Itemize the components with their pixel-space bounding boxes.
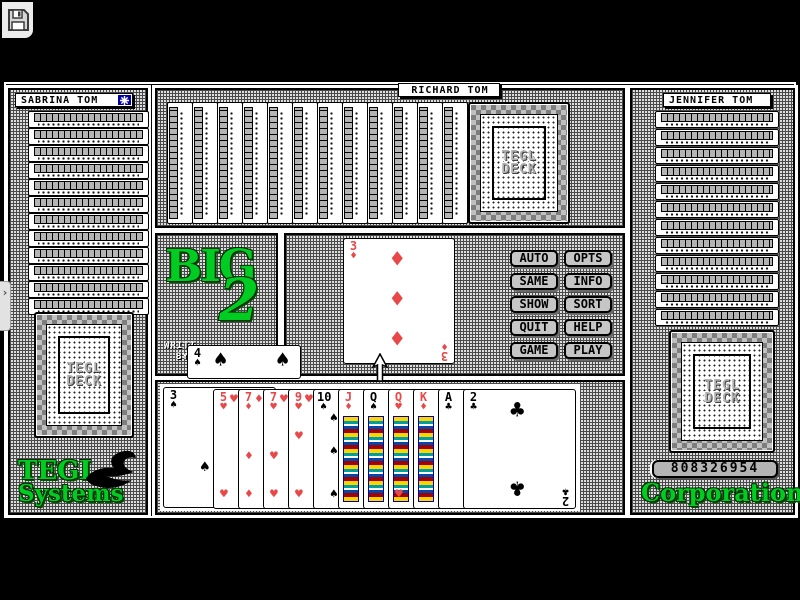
card-pip: ♥ — [270, 488, 278, 501]
player-panel-top: TEGL DECK — [155, 88, 625, 228]
card-back — [28, 247, 149, 264]
same-button[interactable]: SAME — [510, 273, 558, 290]
face-card-art — [368, 416, 384, 502]
corporation-wordmark: Corporation — [641, 481, 800, 505]
player-panel-left: SABRINA TOM TEGL DECK TEGL — [8, 88, 148, 515]
card-pip: ♣ — [510, 476, 524, 500]
card-back — [367, 102, 393, 224]
opts-button[interactable]: OPTS — [564, 250, 612, 267]
card-back — [192, 102, 218, 224]
info-button[interactable]: INFO — [564, 273, 612, 290]
hand-panel: 3♠ ♠ 5♥ ♥ ♥ 7♦ ♦ ♦ ♦ 7♥ ♥ ♥ ♥ 9♥ ♥ ♥ ♥ 1… — [155, 380, 625, 515]
card-pip: ♦ — [255, 393, 263, 406]
player-name-right-label: JENNIFER TOM — [669, 95, 753, 106]
card-pip: ♥ — [295, 430, 303, 443]
deck-back-card: TEGL DECK — [34, 312, 134, 438]
player-panel-right: JENNIFER TOM TEGL DECK — [630, 88, 795, 515]
card-pip: ♠ — [200, 460, 210, 473]
edge-slide-tab[interactable]: › — [0, 281, 11, 331]
big2-game-screen: SABRINA TOM TEGL DECK TEGL — [0, 0, 800, 600]
card-pip: ♥ — [280, 393, 288, 406]
sort-button[interactable]: SORT — [564, 296, 612, 313]
card-back — [342, 102, 368, 224]
played-card: 3 ♦ ♦ ♦ ♦ 3 ♦ — [343, 238, 455, 364]
deck-back-card: TEGL DECK — [669, 330, 775, 453]
turn-indicator — [118, 95, 131, 105]
card-back — [167, 102, 193, 224]
card-pip: ♠ — [276, 349, 289, 373]
card-back — [655, 129, 779, 146]
card-back — [655, 183, 779, 200]
card-back — [242, 102, 268, 224]
card-pip: ♥ — [305, 393, 313, 406]
show-button[interactable]: SHOW — [510, 296, 558, 313]
save-icon — [7, 8, 29, 32]
card-back — [28, 213, 149, 230]
card-back — [28, 128, 149, 145]
card-pip: ♦ — [390, 287, 404, 311]
card-back — [267, 102, 293, 224]
card-pip: ♥ — [220, 488, 228, 501]
card-back — [217, 102, 243, 224]
card-back — [28, 264, 149, 281]
card-back — [392, 102, 418, 224]
player-name-top: RICHARD TOM — [398, 83, 500, 97]
card-back — [28, 179, 149, 196]
card-back — [28, 196, 149, 213]
card-back — [28, 111, 149, 128]
table-panel: 3 ♦ ♦ ♦ ♦ 3 ♦ AUTO OPTS SAME INFO SHOW S… — [284, 233, 625, 376]
deck-back-label: TEGL DECK — [470, 104, 568, 222]
deck-back-card: TEGL DECK — [468, 102, 570, 224]
face-card-art — [343, 416, 359, 502]
serial-number: 808326954 — [652, 460, 778, 478]
help-button[interactable]: HELP — [564, 319, 612, 336]
card-pip: ♠ — [330, 488, 338, 501]
card-pip: ♥ — [230, 393, 238, 406]
swan-logo-icon — [76, 448, 138, 492]
card-pip: ♥ — [295, 488, 303, 501]
card-back — [655, 255, 779, 272]
game-button[interactable]: GAME — [510, 342, 558, 359]
card-back — [28, 162, 149, 179]
deck-back-label: TEGL DECK — [36, 314, 132, 436]
card-rank: 3 ♦ — [438, 341, 451, 361]
face-card-art — [418, 416, 434, 502]
auto-button[interactable]: AUTO — [510, 250, 558, 267]
player-name-top-label: RICHARD TOM — [411, 85, 488, 96]
card-pip: ♦ — [245, 488, 253, 501]
play-button[interactable]: PLAY — [564, 342, 612, 359]
card-back — [655, 273, 779, 290]
card-back — [655, 291, 779, 308]
side-played-card: 4 ♠ ♠ ♠ — [187, 345, 301, 379]
card-back — [317, 102, 343, 224]
card-rank: 3 ♦ — [347, 241, 360, 261]
player-name-left: SABRINA TOM — [15, 93, 133, 107]
card-back — [655, 219, 779, 236]
card-back — [442, 102, 468, 224]
card-back — [655, 237, 779, 254]
card-back — [655, 165, 779, 182]
card-rank: 2 ♣ — [559, 486, 572, 506]
card-pip: ♠ — [214, 349, 227, 373]
card-back — [417, 102, 443, 224]
player-name-right: JENNIFER TOM — [663, 93, 771, 107]
save-button[interactable] — [2, 2, 33, 38]
card-pip: ♦ — [245, 450, 253, 463]
card-pip: ♦ — [390, 327, 404, 351]
deck-back-label: TEGL DECK — [671, 332, 773, 451]
star-icon — [120, 96, 129, 105]
card-back — [292, 102, 318, 224]
card-rank: 4 ♠ — [191, 348, 204, 368]
card-pip: ♦ — [390, 247, 404, 271]
card-pip: ♠ — [330, 412, 338, 425]
card-back — [28, 145, 149, 162]
player-name-left-label: SABRINA TOM — [21, 95, 98, 106]
card-back — [655, 111, 779, 128]
card-back — [655, 201, 779, 218]
quit-button[interactable]: QUIT — [510, 319, 558, 336]
card-pip: ♣ — [510, 398, 524, 422]
chevron-right-icon: › — [3, 286, 8, 299]
card-pip: ♥ — [395, 488, 403, 501]
card-back — [655, 147, 779, 164]
card-back — [28, 230, 149, 247]
card-pip: ♥ — [270, 450, 278, 463]
card-back — [655, 309, 779, 326]
big2-logo-numeral: 2 — [219, 271, 259, 329]
card-back — [28, 281, 149, 298]
hand-card-2c[interactable]: 2♣ ♣ ♣ 2 ♣ — [463, 389, 576, 509]
cursor-up-icon — [371, 353, 389, 383]
card-pip: ♠ — [330, 445, 338, 458]
